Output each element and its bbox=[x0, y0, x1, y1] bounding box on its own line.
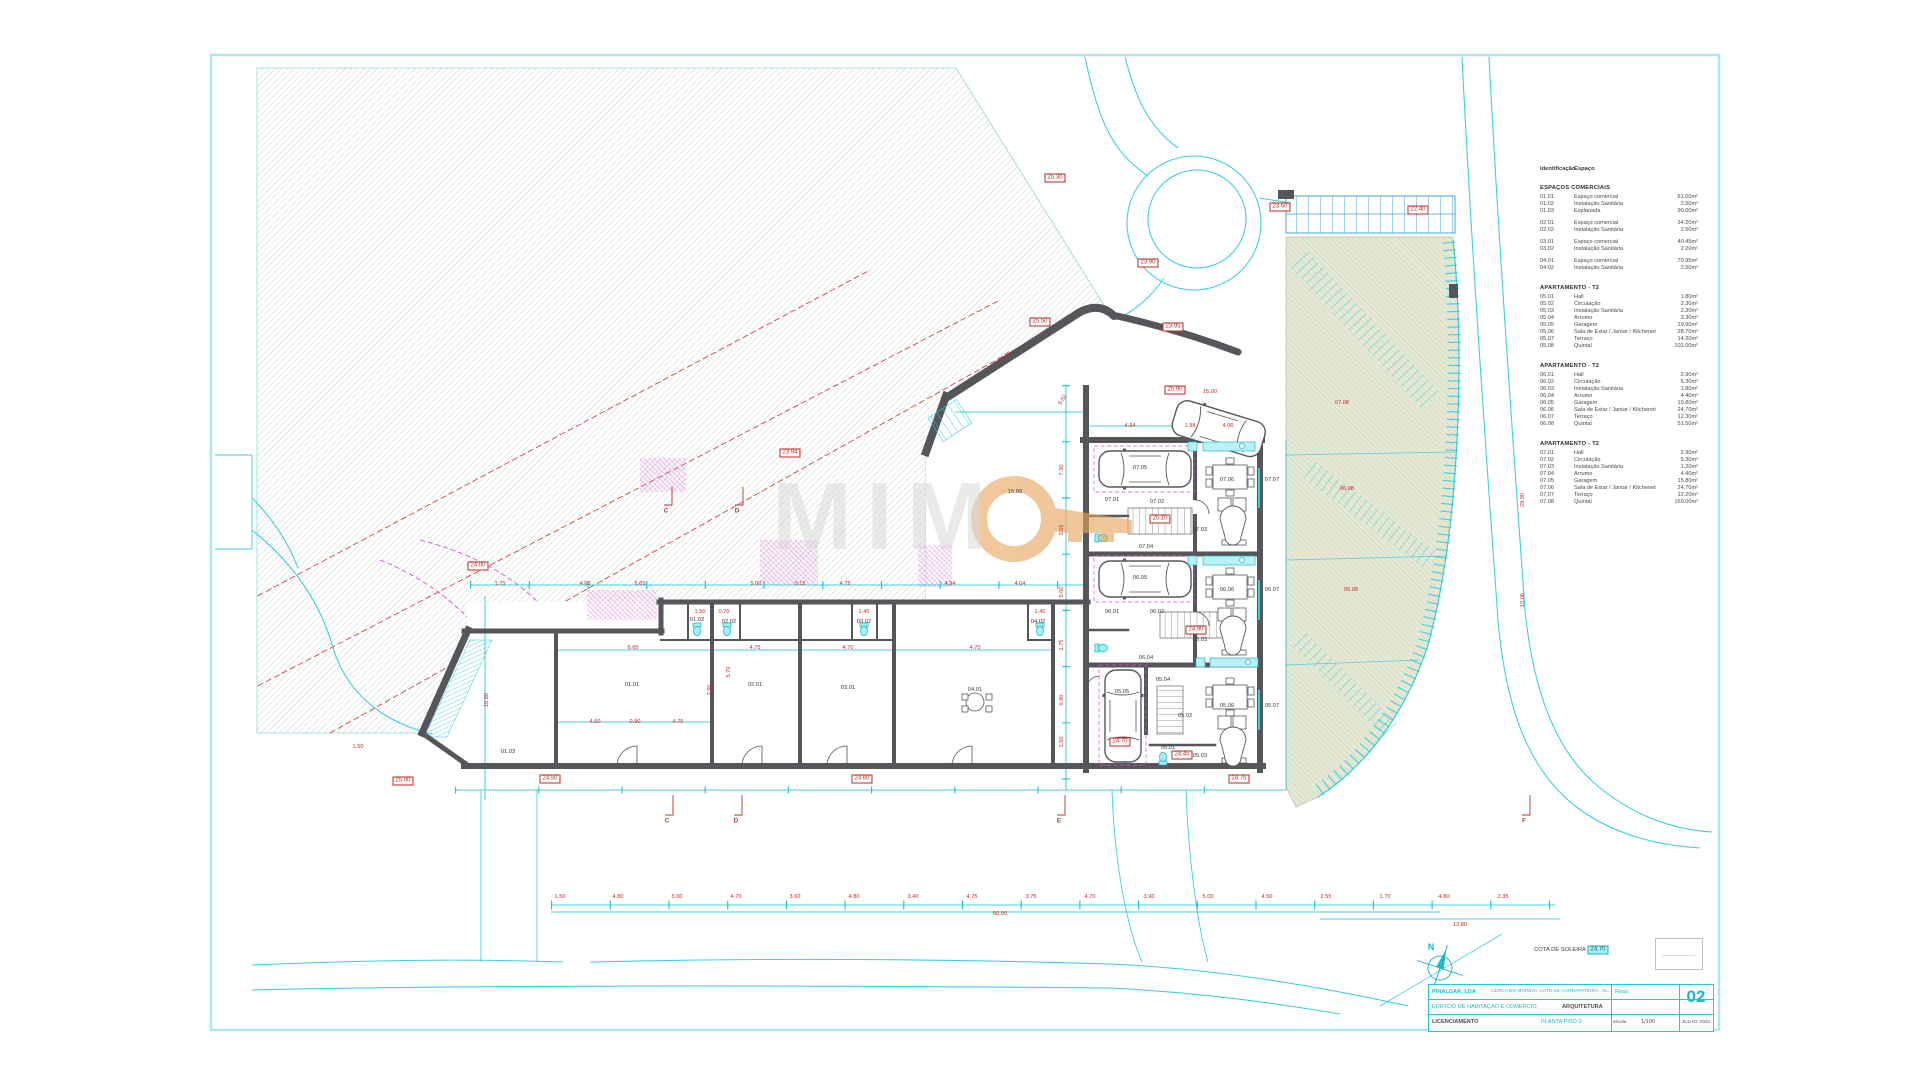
dimension-label: 5.00 bbox=[1059, 587, 1065, 598]
dimension-label: 5.00 bbox=[672, 894, 683, 900]
room-label: 03.01 bbox=[841, 685, 856, 691]
elevation-label: 24.60 bbox=[851, 775, 872, 784]
dimension-label: 4.94 bbox=[945, 581, 956, 587]
dimension-label: 3.75 bbox=[1026, 894, 1037, 900]
dimension-label: 1.50 bbox=[1059, 737, 1065, 748]
room-label: 07.06 bbox=[1220, 477, 1235, 483]
room-label: 05.02 bbox=[1178, 713, 1193, 719]
elevation-label: 25.90 bbox=[1164, 386, 1185, 395]
dimension-label: D bbox=[734, 818, 738, 825]
room-label: 07.05 bbox=[1133, 465, 1148, 471]
annotation-layer: 24.5024.6024.7525.0024.0023.9425.5023.95… bbox=[0, 0, 1920, 1080]
room-label: 02.02 bbox=[722, 619, 737, 625]
dimension-label: 5.00 bbox=[1203, 894, 1214, 900]
dimension-label: 5.02 bbox=[1058, 394, 1069, 406]
room-label: COTA DE SOLEIRA bbox=[1534, 947, 1586, 953]
dimension-label: 4.75 bbox=[750, 645, 761, 651]
room-label: 06.03 bbox=[1193, 637, 1208, 643]
room-label: 07.04 bbox=[1139, 544, 1154, 550]
room-label: 06.06 bbox=[1220, 587, 1235, 593]
dimension-label: 4.75 bbox=[840, 581, 851, 587]
dimension-label: 2.35 bbox=[1498, 894, 1509, 900]
dimension-label: 4.60 bbox=[580, 581, 591, 587]
dimension-label: 0.70 bbox=[719, 609, 730, 615]
dimension-label: 2.55 bbox=[1321, 894, 1332, 900]
dimension-label: 4.70 bbox=[970, 645, 981, 651]
elevation-label: 24.00 bbox=[467, 562, 488, 571]
dimension-label: C bbox=[665, 818, 669, 825]
dimension-label: 1.45 bbox=[859, 609, 870, 615]
elevation-label: 24.70 bbox=[1109, 738, 1130, 747]
dimension-label: 4.04 bbox=[1015, 581, 1026, 587]
dimension-label: 6.65 bbox=[628, 645, 639, 651]
dimension-label: 4.75 bbox=[673, 719, 684, 725]
dimension-label: 1.50 bbox=[555, 894, 566, 900]
dimension-label: 1.50 bbox=[695, 609, 706, 615]
dimension-label: 05.08 bbox=[1344, 587, 1358, 593]
dimension-label: 5.00 bbox=[751, 581, 762, 587]
dimension-label: 4.50 bbox=[1262, 894, 1273, 900]
room-label: 06.07 bbox=[1265, 587, 1280, 593]
dimension-label: 29.90 bbox=[1520, 493, 1526, 507]
room-label: 03.02 bbox=[857, 619, 872, 625]
dimension-label: 3.40 bbox=[908, 894, 919, 900]
room-label: 05.07 bbox=[1265, 703, 1280, 709]
elevation-label: 24.70 bbox=[1587, 946, 1608, 955]
dimension-label: 10.80 bbox=[484, 693, 490, 707]
dimension-label: 1.75 bbox=[1059, 640, 1065, 651]
dimension-label: 12.80 bbox=[1453, 922, 1467, 928]
dimension-label: 0.80 bbox=[1059, 695, 1065, 706]
dimension-label: 0.15 bbox=[795, 581, 806, 587]
dimension-label: 1.50 bbox=[353, 744, 364, 750]
dimension-label: 4.60 bbox=[590, 719, 601, 725]
room-label: 05.01 bbox=[1161, 745, 1176, 751]
elevation-label: 23.50 bbox=[1269, 203, 1290, 212]
dimension-label: 07.08 bbox=[1335, 400, 1349, 406]
dimension-label: 5.70 bbox=[726, 667, 732, 678]
room-label: 01.03 bbox=[501, 749, 516, 755]
dimension-label: 4.80 bbox=[849, 894, 860, 900]
room-label: 04.02 bbox=[1031, 619, 1046, 625]
dimension-label: 14.55 bbox=[997, 351, 1012, 364]
dimension-label: 6.65 bbox=[635, 581, 646, 587]
dimension-label: 4.80 bbox=[613, 894, 624, 900]
dimension-label: 4.80 bbox=[1439, 894, 1450, 900]
elevation-label: 24.75 bbox=[1228, 775, 1249, 784]
room-label: 06.05 bbox=[1133, 575, 1148, 581]
dimension-label: 4.70 bbox=[731, 894, 742, 900]
dimension-label: 06.08 bbox=[1340, 486, 1354, 492]
elevation-label: 23.95 bbox=[1162, 323, 1183, 332]
dimension-label: 1.70 bbox=[1380, 894, 1391, 900]
dimension-label: 4.94 bbox=[1125, 423, 1136, 429]
room-label: 05.06 bbox=[1220, 703, 1235, 709]
room-label: 06.02 bbox=[1150, 609, 1165, 615]
dimension-label: C bbox=[664, 508, 668, 515]
dimension-label: 3.05 bbox=[1059, 525, 1065, 536]
elevation-label: 23.90 bbox=[1137, 259, 1158, 268]
drawing-sheet: MIM Identificação Espaço ESPAÇOS COMERCI… bbox=[0, 0, 1920, 1080]
dimension-label: 7.50 bbox=[707, 685, 713, 696]
room-label: 01.02 bbox=[690, 617, 705, 623]
room-label: 07.03 bbox=[1193, 527, 1208, 533]
room-label: 07.02 bbox=[1150, 499, 1165, 505]
room-label: 05.04 bbox=[1156, 677, 1171, 683]
dimension-label: 4.70 bbox=[843, 645, 854, 651]
dimension-label: 15.06 bbox=[1520, 593, 1526, 607]
room-label: 05.05 bbox=[1115, 689, 1130, 695]
room-label: 06.01 bbox=[1105, 609, 1120, 615]
elevation-label: 25.10 bbox=[1149, 515, 1170, 524]
elevation-label: 22.40 bbox=[1407, 206, 1428, 215]
elevation-label: 24.90 bbox=[1185, 626, 1206, 635]
dimension-label: 3.60 bbox=[790, 894, 801, 900]
elevation-label: 25.30 bbox=[1044, 174, 1065, 183]
dimension-label: 1.40 bbox=[1035, 609, 1046, 615]
room-label: 04.01 bbox=[968, 687, 983, 693]
room-label: 07.07 bbox=[1265, 477, 1280, 483]
dimension-label: 0.90 bbox=[630, 719, 641, 725]
dimension-label: E bbox=[1057, 818, 1061, 825]
room-label: 15.00 bbox=[1008, 489, 1023, 495]
room-label: 06.04 bbox=[1139, 655, 1154, 661]
room-label: 02.01 bbox=[748, 682, 763, 688]
dimension-label: F bbox=[1522, 818, 1526, 825]
dimension-label: N bbox=[1428, 942, 1435, 952]
room-label: 01.01 bbox=[625, 682, 640, 688]
elevation-label: 25.50 bbox=[1029, 318, 1050, 327]
dimension-label: 50.90 bbox=[993, 911, 1007, 917]
dimension-label: 15.00 bbox=[1203, 389, 1217, 395]
room-label: 05.03 bbox=[1193, 753, 1208, 759]
elevation-label: 25.00 bbox=[392, 777, 413, 786]
room-label: 07.01 bbox=[1105, 497, 1120, 503]
elevation-label: 23.94 bbox=[779, 449, 800, 458]
dimension-label: 4.75 bbox=[967, 894, 978, 900]
dimension-label: 1.75 bbox=[495, 581, 506, 587]
dimension-label: 3.90 bbox=[1144, 894, 1155, 900]
dimension-label: 4.06 bbox=[1223, 423, 1234, 429]
dimension-label: 7.30 bbox=[1059, 465, 1065, 476]
dimension-label: D bbox=[735, 508, 739, 515]
elevation-label: 24.45 bbox=[1171, 751, 1192, 760]
elevation-label: 24.50 bbox=[539, 775, 560, 784]
dimension-label: 1.98 bbox=[1185, 423, 1196, 429]
dimension-label: 4.70 bbox=[1085, 894, 1096, 900]
